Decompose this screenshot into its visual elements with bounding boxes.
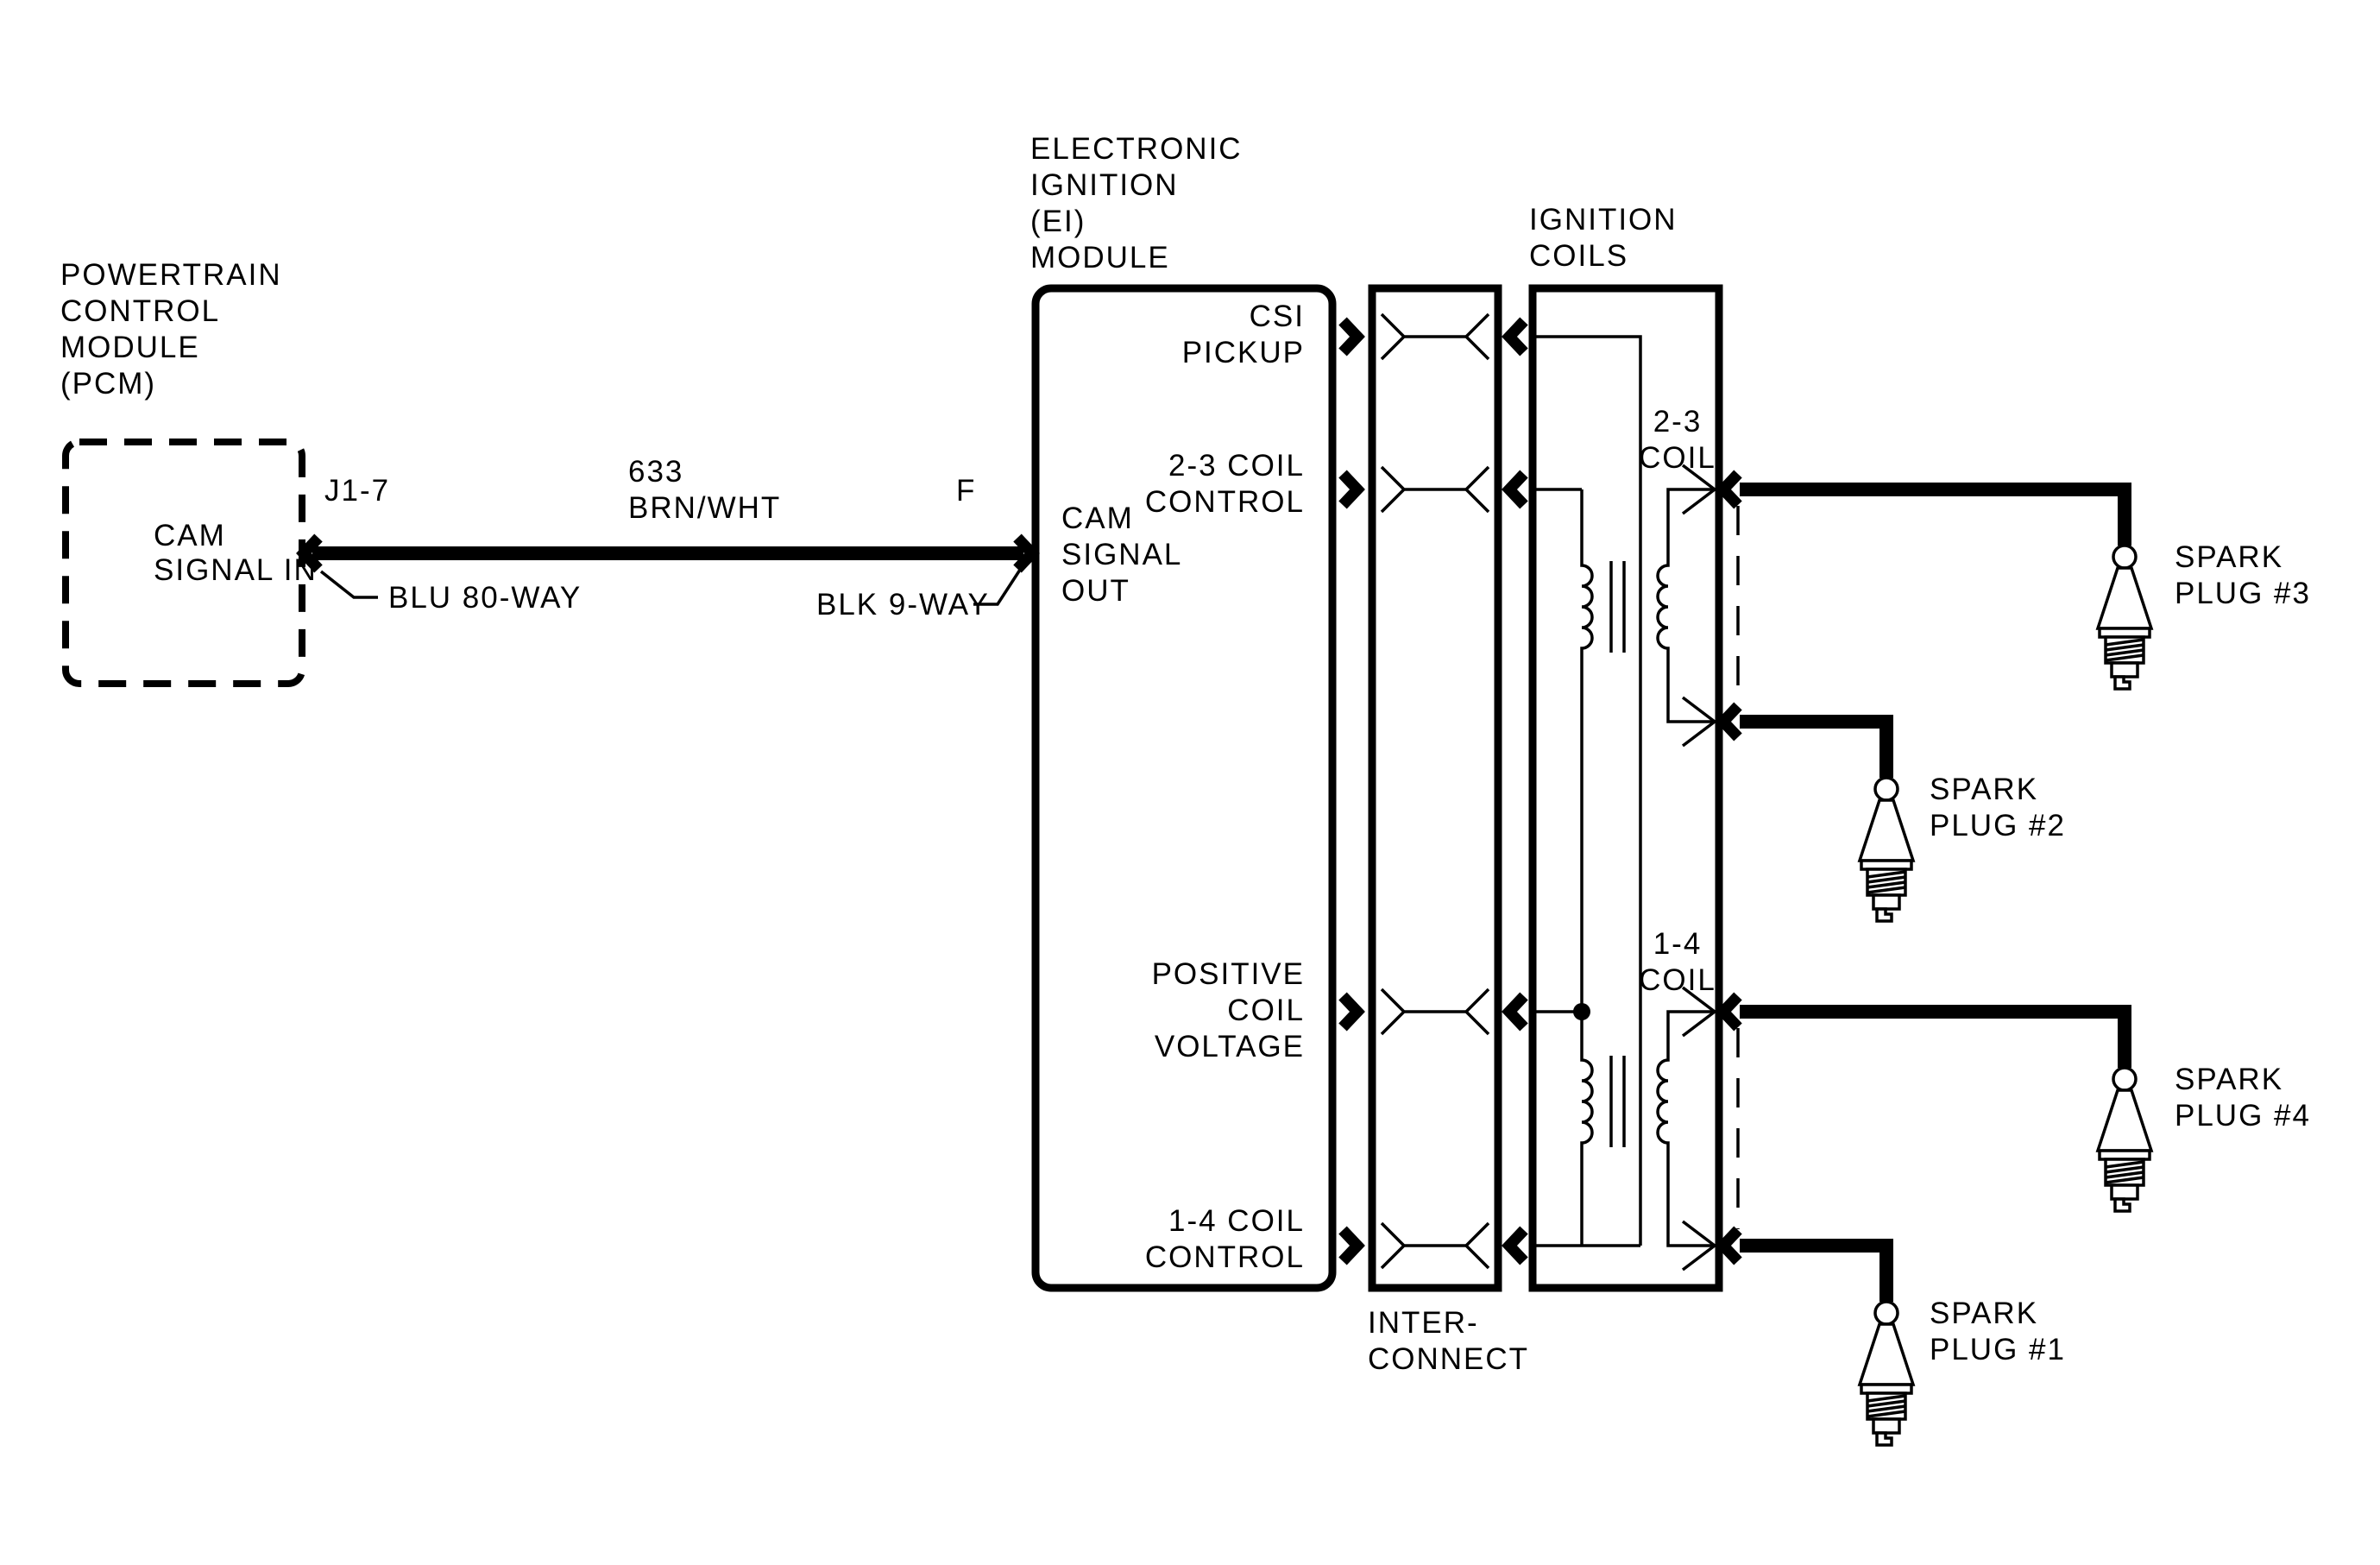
coil-14-control-label: 1-4 COIL xyxy=(1168,1204,1305,1238)
coil-2-3-label: 2-3 xyxy=(1653,405,1703,439)
spark-plug-label: SPARK xyxy=(2175,1063,2283,1096)
transformer-1-4-core xyxy=(1611,1056,1624,1147)
coil-2-3-label: COIL xyxy=(1639,441,1716,475)
wiring-diagram: POWERTRAIN CONTROL MODULE (PCM) CAM SIGN… xyxy=(0,0,2380,1565)
ei-module: ELECTRONIC IGNITION (EI) MODULE CAM SIGN… xyxy=(1030,132,1357,1288)
spark-plug-2: SPARK PLUG #2 xyxy=(1740,722,2066,921)
spark-plug-4: SPARK PLUG #4 xyxy=(1740,1012,2311,1211)
ei-module-title: IGNITION xyxy=(1030,168,1179,202)
output-terminal-chevron-icon xyxy=(1723,706,1738,737)
connector-chevron-icon xyxy=(1343,474,1357,505)
interconnect-label: CONNECT xyxy=(1368,1342,1529,1376)
primary-windings xyxy=(1582,489,1592,1246)
interconnect-terminal-symbol xyxy=(1382,1223,1489,1268)
connector-chevron-icon xyxy=(1343,1230,1357,1261)
spark-plug-wire xyxy=(1740,1246,1886,1302)
spark-plug-wire xyxy=(1740,1012,2125,1068)
coil-1-4-label: COIL xyxy=(1639,963,1716,997)
cam-signal-out-label: OUT xyxy=(1061,574,1130,608)
spark-plug-wire xyxy=(1740,489,2125,546)
pcm-title: (PCM) xyxy=(60,367,156,401)
cam-signal-out-label: SIGNAL xyxy=(1061,538,1182,571)
interconnect: INTER- CONNECT xyxy=(1368,288,1529,1376)
pcm-connector-label: BLU 80-WAY xyxy=(388,581,582,615)
ignition-coils-title: IGNITION xyxy=(1529,203,1678,237)
output-terminal-chevron-icon xyxy=(1723,474,1738,505)
csi-pickup-label: CSI xyxy=(1250,300,1305,333)
interconnect-terminal-symbol xyxy=(1382,989,1489,1034)
pcm-title: POWERTRAIN xyxy=(60,258,282,292)
coil-14-control-label: CONTROL xyxy=(1145,1240,1305,1274)
spark-plug-label: SPARK xyxy=(1930,773,2038,806)
cam-signal-in-label: CAM xyxy=(154,519,226,552)
interconnect-box xyxy=(1372,288,1498,1288)
connector-chevron-icon xyxy=(1343,321,1357,352)
ei-connector-label: BLK 9-WAY xyxy=(816,588,990,622)
spark-plug-icon xyxy=(1860,1302,1913,1445)
cam-signal-in-label: SIGNAL IN xyxy=(154,553,318,587)
spark-plug-1: SPARK PLUG #1 xyxy=(1740,1246,2066,1445)
positive-coil-voltage-label: VOLTAGE xyxy=(1155,1030,1305,1063)
connector-chevron-icon xyxy=(1343,996,1357,1027)
ei-module-title: (EI) xyxy=(1030,205,1086,238)
interconnect-label: INTER- xyxy=(1368,1306,1479,1340)
spark-plug-icon xyxy=(2098,1068,2151,1211)
ei-module-box xyxy=(1036,288,1332,1288)
coil-23-control-label: 2-3 COIL xyxy=(1168,449,1305,483)
wiring-diagram-page: POWERTRAIN CONTROL MODULE (PCM) CAM SIGN… xyxy=(0,0,2380,1565)
output-terminal-chevron-icon xyxy=(1723,996,1738,1027)
pcm-title: MODULE xyxy=(60,331,200,364)
spark-plug-wire xyxy=(1740,722,1886,778)
ei-pin-label: F xyxy=(956,474,976,508)
cam-signal-out-label: CAM xyxy=(1061,502,1134,535)
wire-circuit-number: 633 xyxy=(628,455,683,489)
csi-pickup-label: PICKUP xyxy=(1182,336,1305,369)
coil-23-control-label: CONTROL xyxy=(1145,485,1305,519)
ignition-coils: IGNITION COILS 2-3 COIL 1-4 COIL xyxy=(1509,203,1738,1288)
connector-chevron-icon xyxy=(1509,996,1524,1027)
spark-plug-icon xyxy=(2098,546,2151,689)
spark-plug-label: PLUG #2 xyxy=(1930,809,2066,842)
ignition-coils-title: COILS xyxy=(1529,239,1628,273)
pcm-title: CONTROL xyxy=(60,294,220,328)
interconnect-terminal-symbol xyxy=(1382,314,1489,359)
connector-chevron-icon xyxy=(1509,1230,1524,1261)
connector-chevron-icon xyxy=(1509,321,1524,352)
ei-module-title: ELECTRONIC xyxy=(1030,132,1243,166)
spark-plug-label: SPARK xyxy=(2175,540,2283,574)
spark-plug-icon xyxy=(1860,778,1913,921)
interconnect-terminal-symbol xyxy=(1382,467,1489,512)
pcm-pin-label: J1-7 xyxy=(324,474,390,508)
pcm-section: POWERTRAIN CONTROL MODULE (PCM) CAM SIGN… xyxy=(60,258,582,684)
spark-plug-label: PLUG #1 xyxy=(1930,1333,2066,1366)
transformer-2-3-core xyxy=(1611,561,1624,653)
spark-plug-circuits: SPARK PLUG #3 SPARK PLUG #2 SPARK PLUG #… xyxy=(1740,489,2311,1445)
connector-leader-line xyxy=(321,571,378,597)
output-terminal-chevron-icon xyxy=(1723,1230,1738,1261)
positive-coil-voltage-label: POSITIVE xyxy=(1152,957,1305,991)
transformer-1-4-secondary-winding xyxy=(1658,1012,1714,1246)
spark-plug-label: SPARK xyxy=(1930,1297,2038,1330)
ei-module-title: MODULE xyxy=(1030,241,1170,275)
spark-plug-label: PLUG #3 xyxy=(2175,577,2311,610)
positive-coil-voltage-label: COIL xyxy=(1227,994,1305,1027)
wire-color-code: BRN/WHT xyxy=(628,491,781,525)
spark-plug-3: SPARK PLUG #3 xyxy=(1740,489,2311,689)
transformer-2-3-secondary-winding xyxy=(1658,489,1714,722)
coil-1-4-label: 1-4 xyxy=(1653,927,1703,961)
connector-chevron-icon xyxy=(1509,474,1524,505)
spark-plug-label: PLUG #4 xyxy=(2175,1099,2311,1133)
